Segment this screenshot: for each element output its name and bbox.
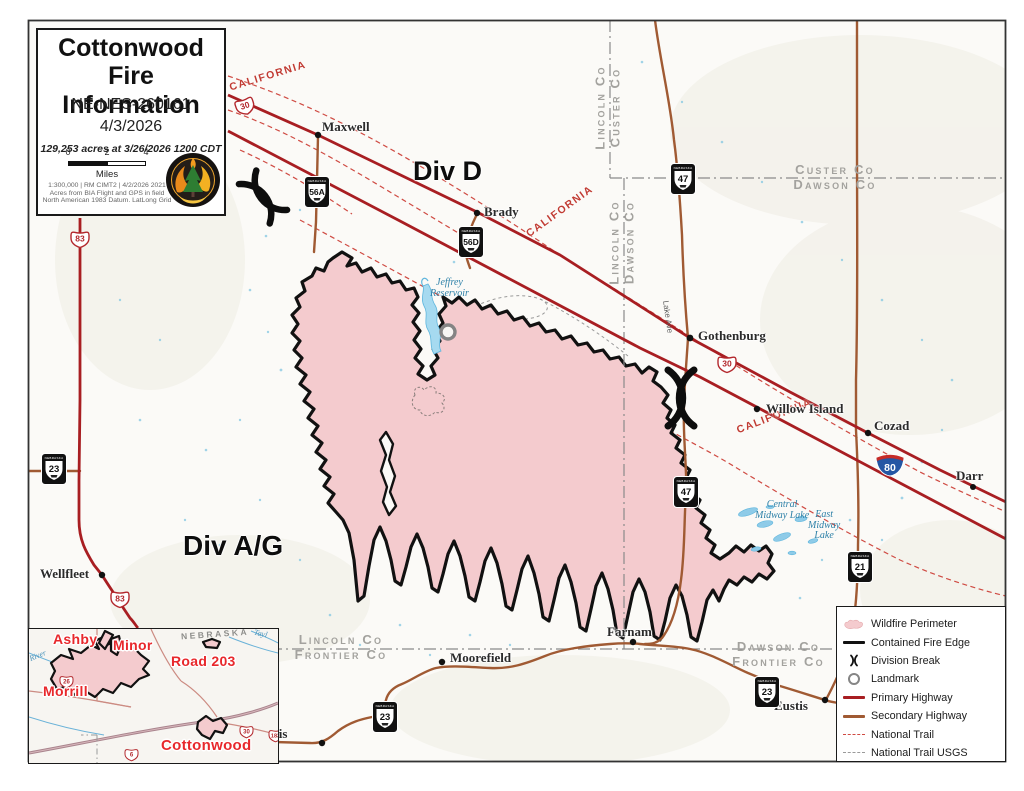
svg-text:NEBRASKA: NEBRASKA	[851, 554, 870, 558]
ne23-shield-west: NEBRASKA 23	[41, 453, 67, 485]
legend-row-wildfire-perimeter: Wildfire Perimeter	[837, 615, 1005, 633]
svg-text:30: 30	[722, 359, 732, 369]
landmark-ring	[441, 325, 455, 339]
national-trail-icon	[837, 734, 871, 735]
inset-fire-label-ashby: Ashby	[53, 631, 97, 647]
scale-tick-4: 4	[140, 147, 152, 157]
inset-fire-label-cottonwood: Cottonwood	[161, 737, 251, 754]
svg-text:80: 80	[884, 462, 896, 474]
svg-text:NEBRASKA: NEBRASKA	[308, 179, 327, 183]
title-box: Cottonwood Fire Information NE-NES-26016…	[36, 28, 226, 216]
legend-row-landmark: Landmark	[837, 670, 1005, 688]
us83-shield-north: 83	[68, 228, 92, 250]
svg-text:56D: 56D	[463, 237, 479, 247]
inset-fire-label-road203: Road 203	[171, 653, 236, 669]
town-label-brady: Brady	[484, 204, 519, 220]
i80-interstate-shield: 80	[872, 448, 908, 478]
county-label-lincoln-dawson: Lincoln Co Dawson Co	[608, 183, 637, 303]
town-label-cozad: Cozad	[874, 418, 909, 434]
legend-row-contained-fire-edge: Contained Fire Edge	[837, 633, 1005, 651]
us83-shield-wellfleet: 83	[108, 588, 132, 610]
svg-text:NEBRASKA: NEBRASKA	[376, 704, 395, 708]
secondary-highway-icon	[837, 715, 871, 718]
county-label-lincoln-frontier: Lincoln Co Frontier Co	[281, 633, 401, 662]
primary-highway-icon	[837, 696, 871, 699]
legend-row-primary-highway: Primary Highway	[837, 689, 1005, 707]
town-label-maxwell: Maxwell	[322, 119, 370, 135]
legend-row-division-break: Division Break	[837, 652, 1005, 670]
map-date: 4/3/2026	[38, 118, 224, 136]
svg-text:83: 83	[75, 234, 85, 244]
county-label-lincoln-custer: Lincoln Co Custer Co	[594, 48, 623, 168]
town-label-darr: Darr	[956, 468, 983, 484]
landmark-icon	[837, 673, 871, 685]
division-break-icon	[837, 654, 871, 667]
map-credits: 1:300,000 | RM CIMT2 | 4/2/2026 2021 Acr…	[42, 182, 172, 205]
jeffrey-reservoir-label: Jeffrey Reservoir	[430, 278, 469, 299]
svg-text:NEBRASKA: NEBRASKA	[462, 229, 481, 233]
town-label-farnam: Farnam	[607, 624, 652, 640]
scale-bar	[68, 161, 146, 166]
division-label-ag: Div A/G	[183, 530, 283, 562]
town-label-willow-island: Willow Island	[766, 401, 843, 417]
ne21-shield: NEBRASKA 21	[847, 551, 873, 583]
contained-fire-edge-icon	[837, 641, 871, 644]
svg-text:47: 47	[678, 174, 689, 185]
inset-fire-label-morrill: Morrill	[43, 683, 88, 699]
ne56d-shield: NEBRASKA 56D	[458, 226, 484, 258]
svg-text:NEBRASKA: NEBRASKA	[674, 166, 693, 170]
scale-unit-label: Miles	[68, 169, 146, 180]
svg-text:47: 47	[681, 487, 692, 498]
ne47-shield-north: NEBRASKA 47	[670, 163, 696, 195]
legend-row-national-trail: National Trail	[837, 725, 1005, 743]
county-label-dawson-frontier: Dawson Co Frontier Co	[716, 640, 841, 669]
division-label-d: Div D	[413, 156, 482, 187]
svg-text:21: 21	[855, 562, 866, 573]
fire-map-page: Lincoln Co Custer Co Custer Co Dawson Co…	[0, 0, 1024, 791]
scale-bar-filled-half	[69, 162, 108, 165]
svg-text:183: 183	[271, 734, 278, 740]
town-label-gothenburg: Gothenburg	[698, 328, 766, 344]
national-trail-usgs-icon	[837, 752, 871, 753]
inset-fire-label-minor: Minor	[113, 637, 153, 653]
scale-tick-2: 2	[101, 147, 113, 157]
svg-text:NEBRASKA: NEBRASKA	[45, 456, 64, 460]
svg-text:NEBRASKA: NEBRASKA	[677, 479, 696, 483]
svg-text:23: 23	[380, 712, 391, 723]
incident-number: NE-NES-260161	[38, 96, 224, 114]
ne47-shield-south: NEBRASKA 47	[673, 476, 699, 508]
scale-tick-0: 0	[62, 147, 74, 157]
wildfire-perimeter-icon	[837, 618, 871, 630]
map-title-line1: Cottonwood	[38, 34, 224, 63]
ne23-shield-curtis: NEBRASKA 23	[372, 701, 398, 733]
svg-text:30: 30	[243, 730, 250, 736]
svg-text:23: 23	[49, 464, 60, 475]
east-midway-lake-label: East Midway Lake	[808, 510, 840, 542]
us30-shield-gothenburg: 30	[715, 353, 739, 375]
county-label-custer-dawson: Custer Co Dawson Co	[760, 163, 910, 192]
incident-team-logo	[165, 152, 221, 208]
ne23-shield-east: NEBRASKA 23	[754, 676, 780, 708]
inset-overview-map: 26 30 6 183 NEBRASKA River Tayl Ashby Mi…	[28, 628, 279, 764]
unburned-corridor	[380, 432, 396, 515]
svg-text:23: 23	[762, 687, 773, 698]
svg-text:56A: 56A	[309, 187, 325, 197]
map-legend: Wildfire Perimeter Contained Fire Edge D…	[836, 606, 1006, 762]
svg-text:NEBRASKA: NEBRASKA	[758, 679, 777, 683]
svg-text:83: 83	[115, 594, 125, 604]
legend-row-national-trail-usgs: National Trail USGS	[837, 744, 1005, 762]
inset-road203-fire	[203, 639, 220, 648]
town-label-wellfleet: Wellfleet	[40, 566, 89, 582]
town-label-moorefield: Moorefield	[450, 650, 511, 666]
central-midway-lake-label: Central Midway Lake	[755, 500, 809, 521]
ne56a-shield: NEBRASKA 56A	[304, 176, 330, 208]
legend-row-secondary-highway: Secondary Highway	[837, 707, 1005, 725]
